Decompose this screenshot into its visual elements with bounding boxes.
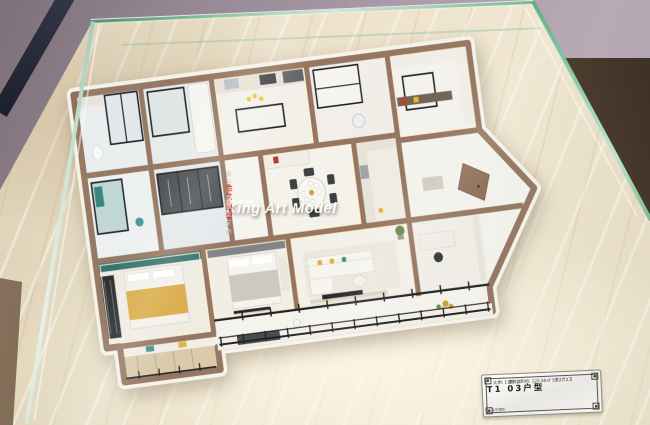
architectural-model [49,22,568,418]
plaque-corner-ornament [592,403,599,410]
floor-plan [49,22,568,418]
plaque-scale-line: 比例: 1:25 [493,380,514,386]
plaque-maker-mark: 金艺模型 [492,407,505,413]
photo-of-model-vitrine: King Art Model 金艺模型 专业沙盘模型定制 T1 03户型 建筑面… [0,0,650,425]
plaque-border: T1 03户型 建筑面积约: 122.50㎡ 3室2厅2卫 比例: 1:25 金… [485,374,598,414]
plaque-corner-ornament [591,373,598,380]
unit-plaque: T1 03户型 建筑面积约: 122.50㎡ 3室2厅2卫 比例: 1:25 金… [481,369,603,417]
watermark-blur-blob [226,199,254,205]
